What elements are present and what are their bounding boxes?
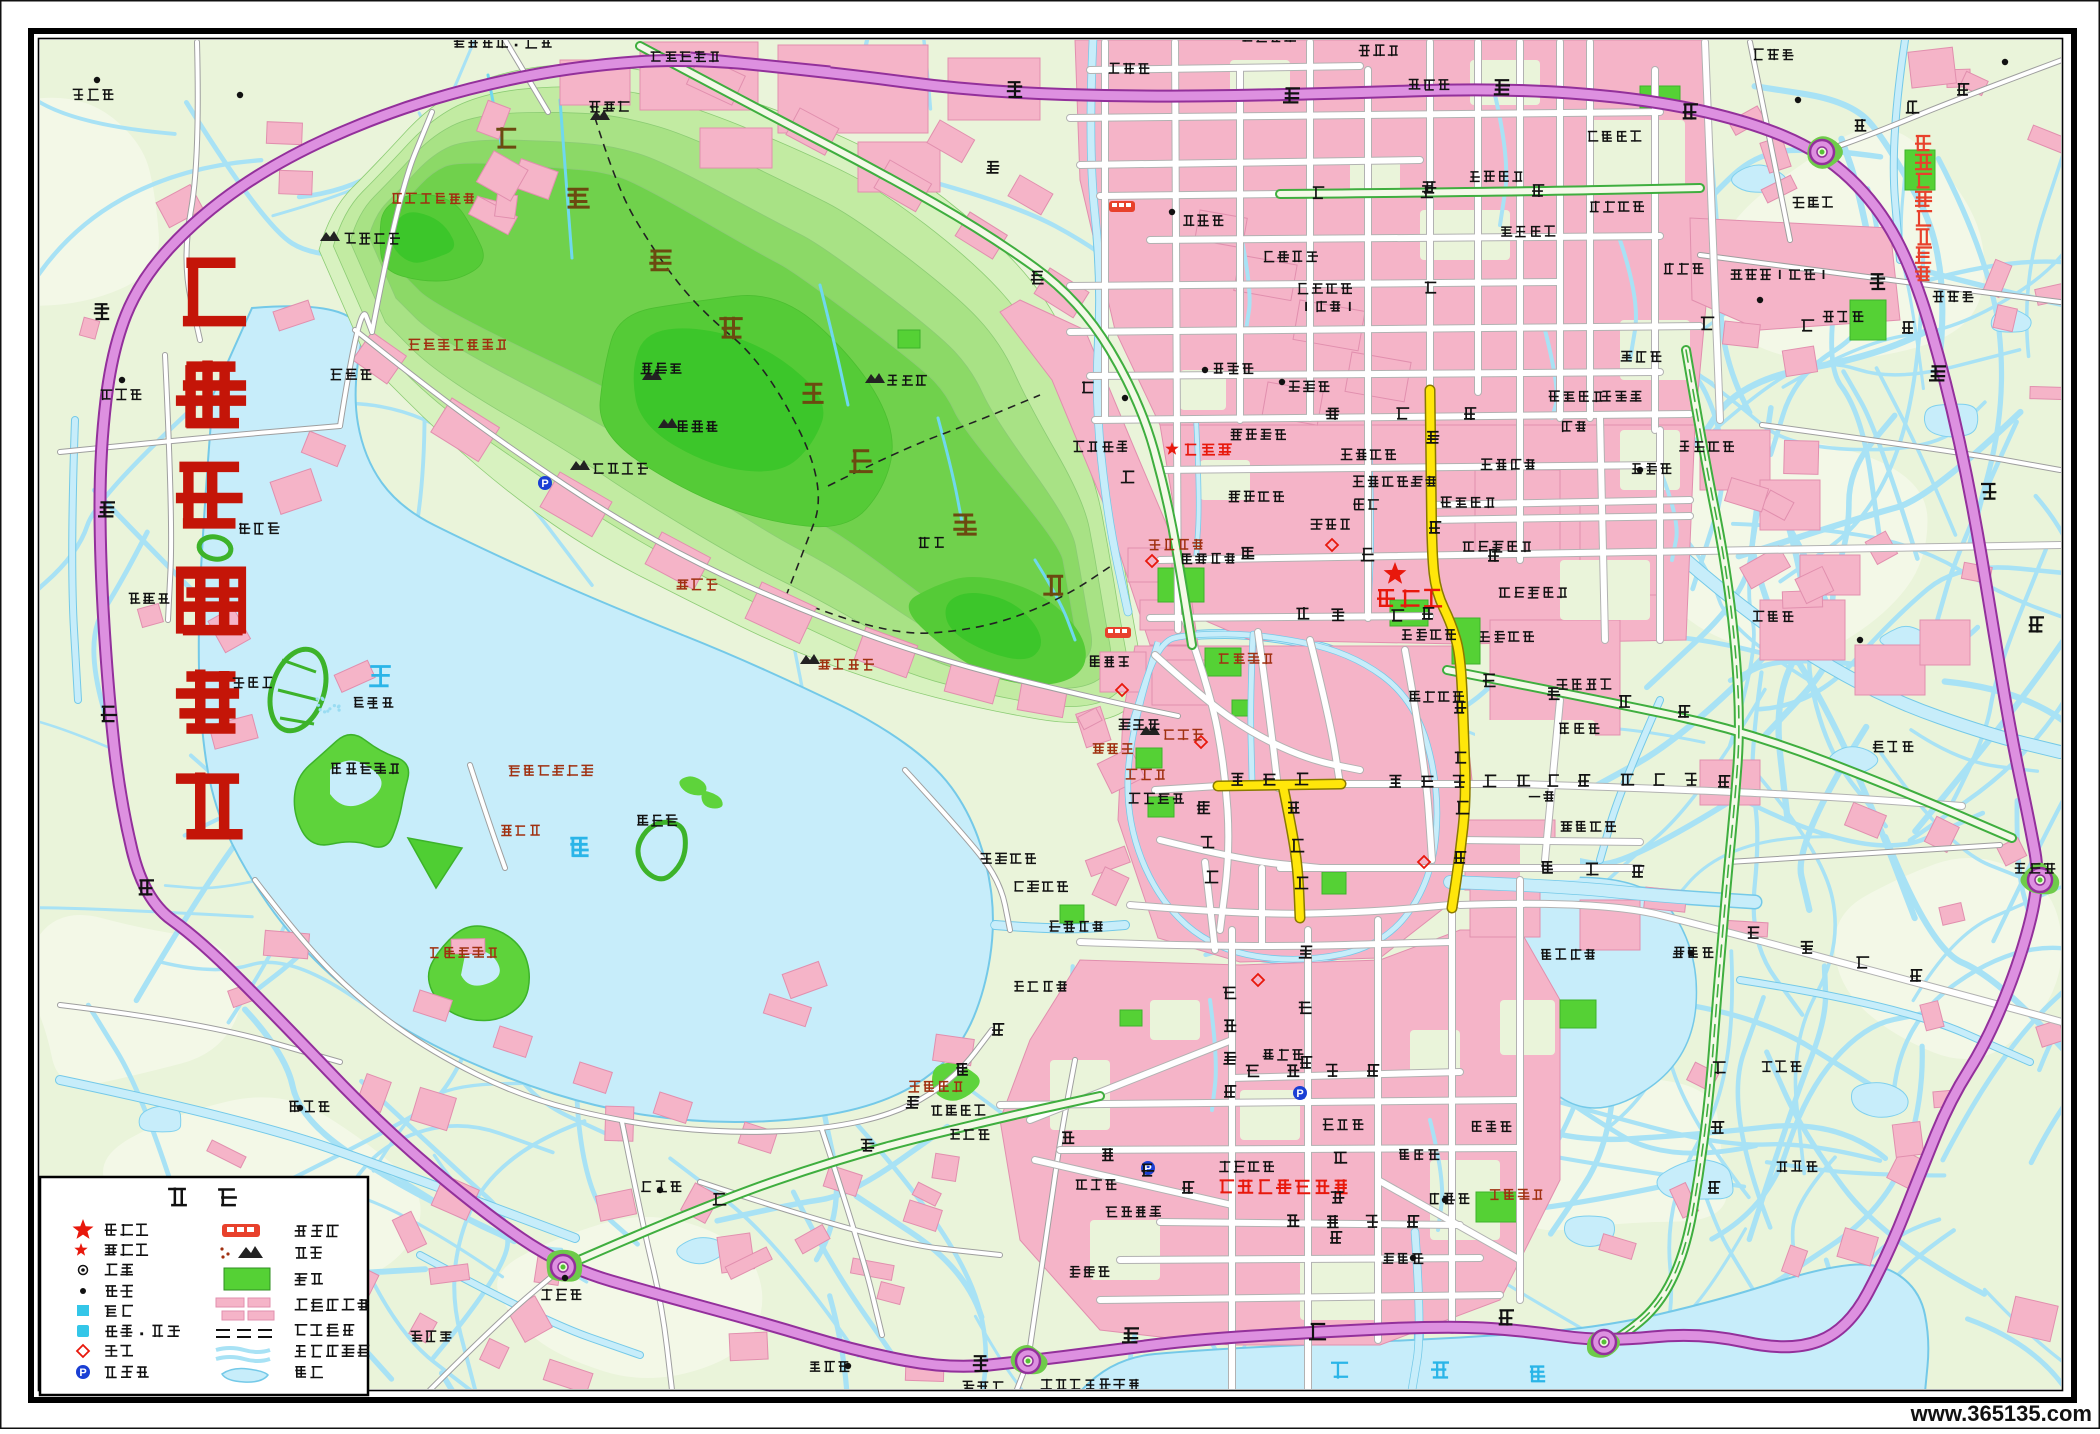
svg-text:P: P <box>541 478 548 490</box>
svg-text:www.365135.com: www.365135.com <box>1910 1401 2092 1426</box>
svg-text:P: P <box>79 1367 86 1379</box>
svg-text:P: P <box>1296 1088 1303 1100</box>
